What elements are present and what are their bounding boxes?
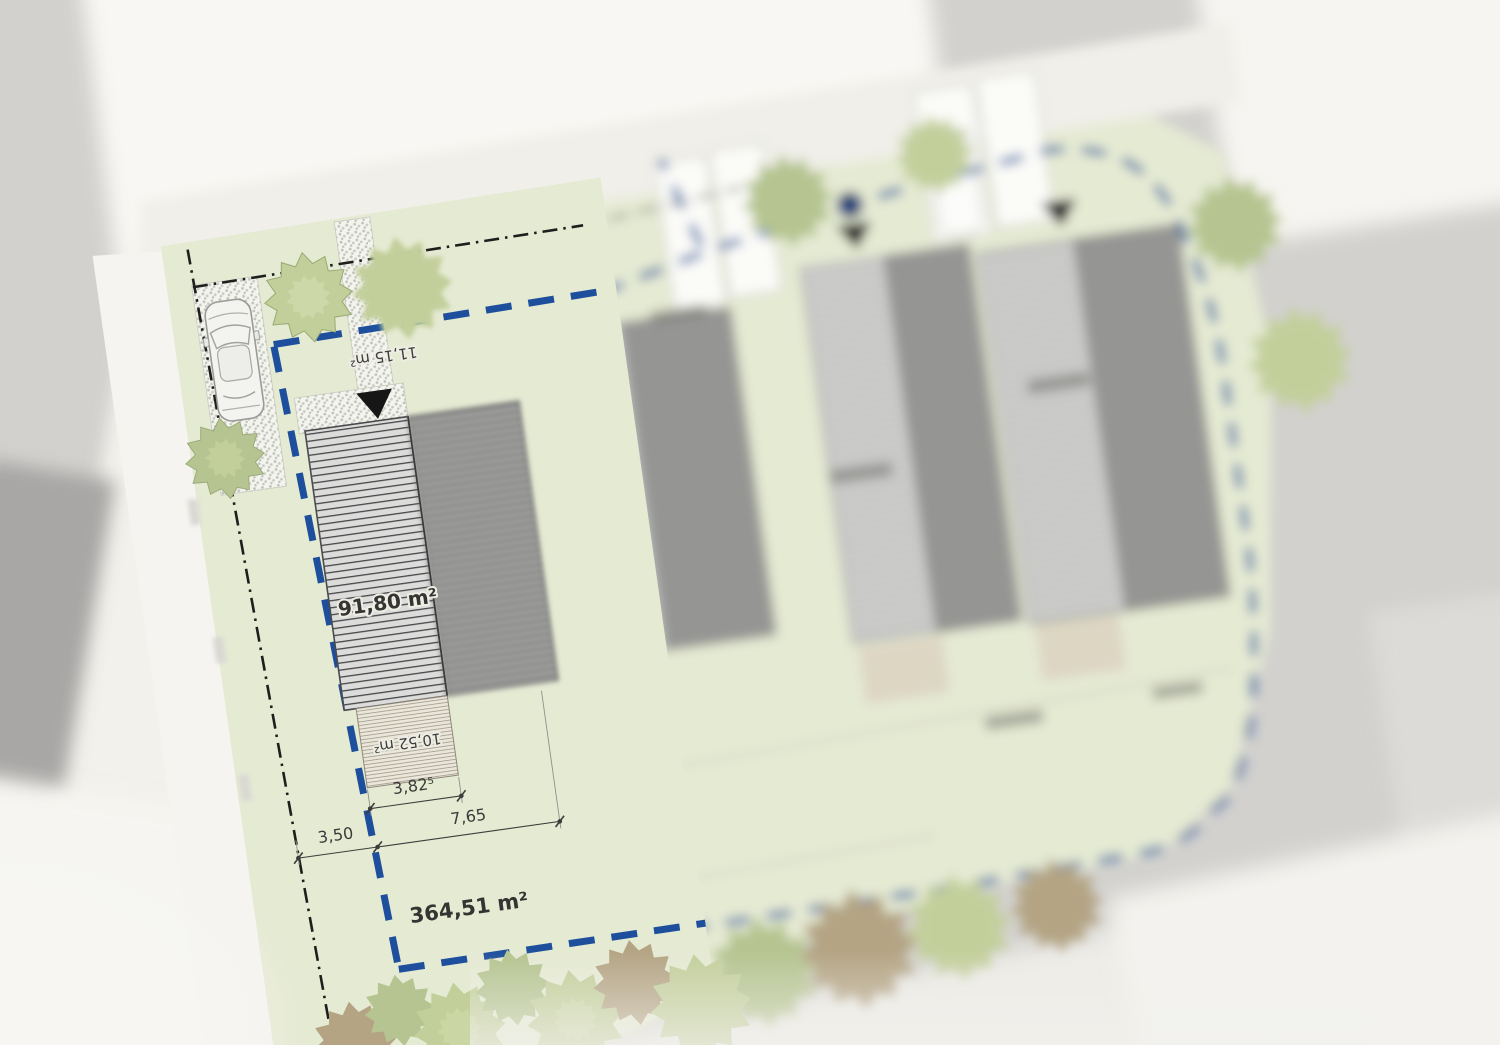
plan-layer: 3,82⁵ 3,50 7,65 11,15 m² 91,80 m² 10,52 … bbox=[0, 0, 1500, 1045]
neighbor-terrace bbox=[1035, 614, 1126, 681]
neighbor-terrace bbox=[859, 636, 950, 703]
plan-svg: 3,82⁵ 3,50 7,65 11,15 m² 91,80 m² 10,52 … bbox=[0, 0, 1500, 1045]
site-plan-canvas: 3,82⁵ 3,50 7,65 11,15 m² 91,80 m² 10,52 … bbox=[0, 0, 1500, 1045]
